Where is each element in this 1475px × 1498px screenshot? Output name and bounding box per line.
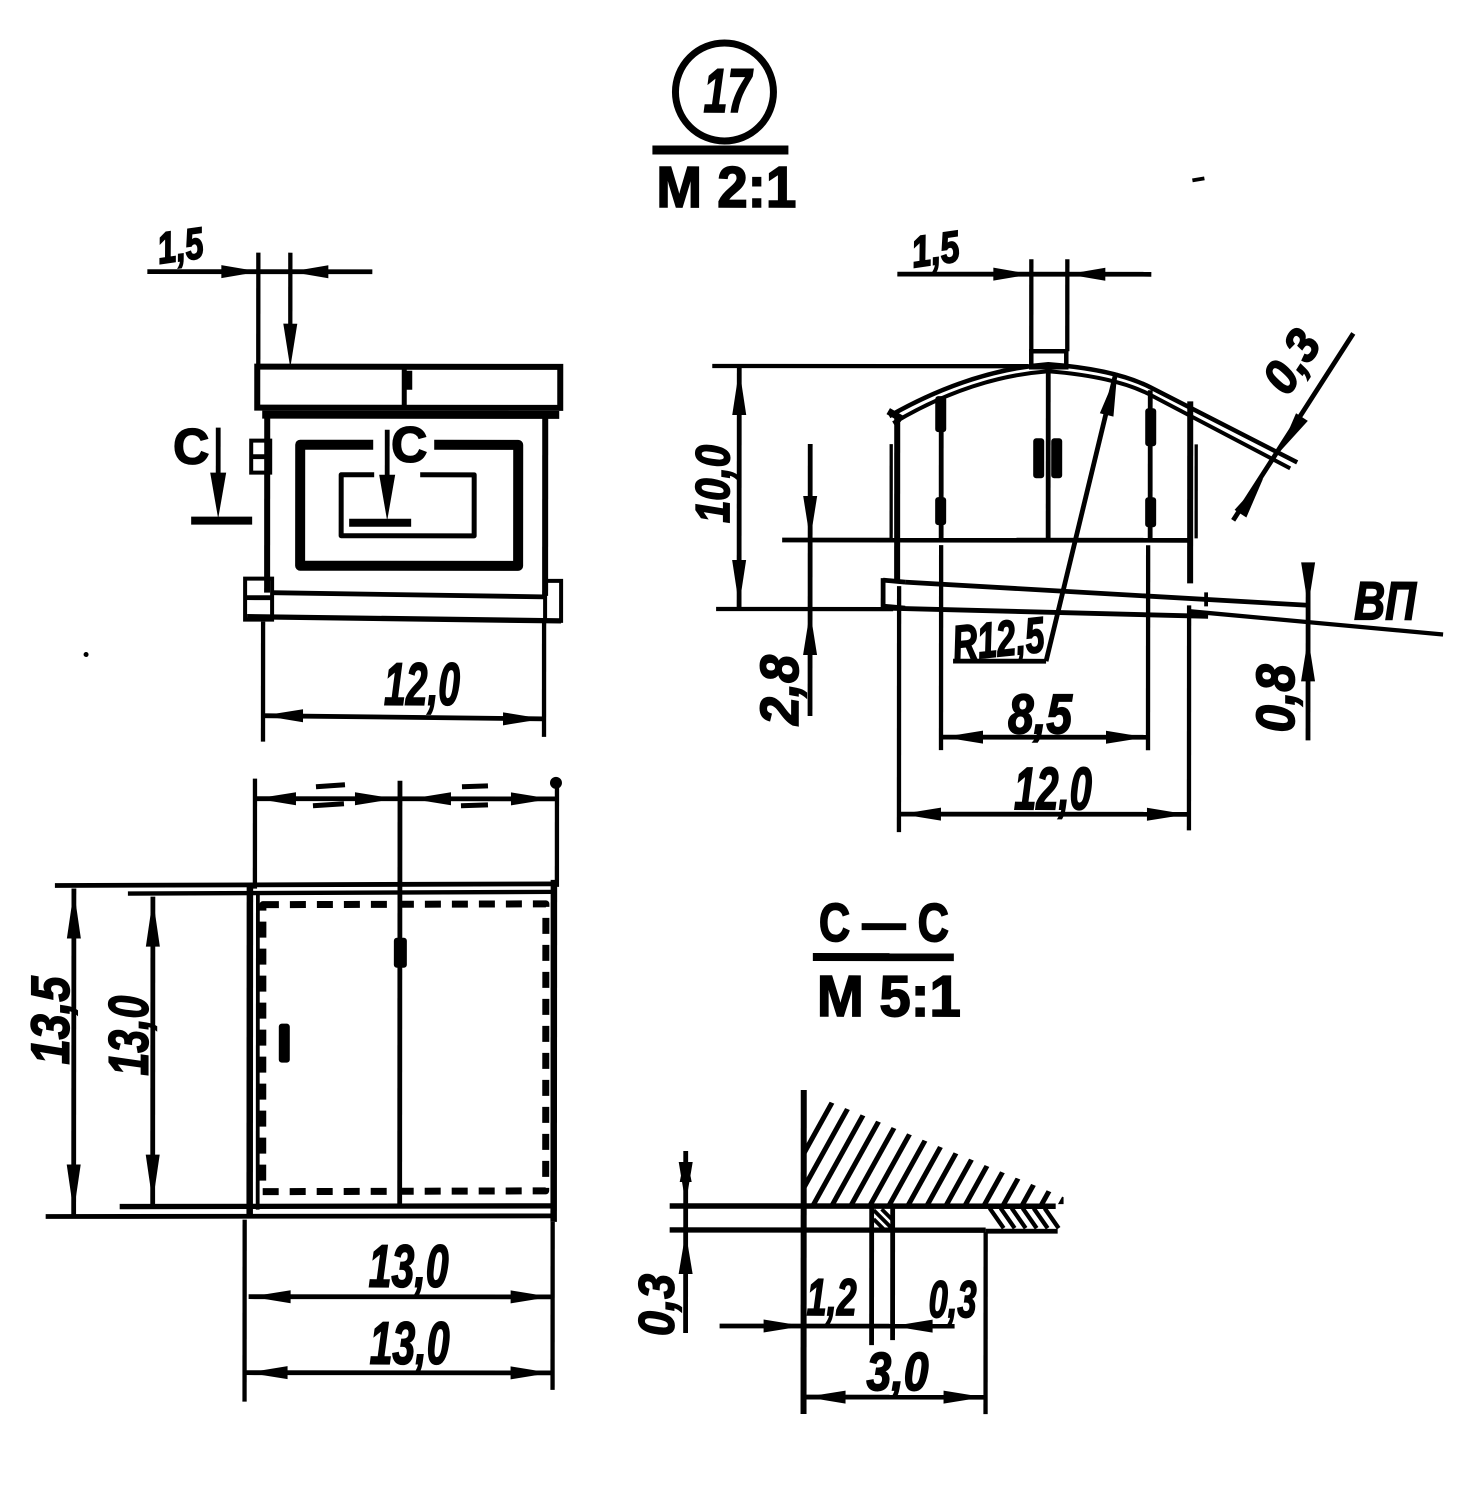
svg-text:М 2:1: М 2:1 [656,155,796,220]
svg-text:С: С [391,417,427,473]
svg-text:13,5: 13,5 [21,976,81,1065]
svg-text:3,0: 3,0 [867,1342,929,1402]
svg-text:ВП: ВП [1354,571,1417,631]
svg-text:13,0: 13,0 [369,1233,449,1300]
svg-text:1,2: 1,2 [807,1269,857,1327]
svg-text:13,0: 13,0 [97,996,160,1076]
svg-text:М 5:1: М 5:1 [817,964,961,1029]
svg-text:С — С: С — С [819,893,949,953]
svg-text:13,0: 13,0 [370,1310,450,1377]
svg-text:С: С [173,419,209,475]
svg-text:12,0: 12,0 [384,651,460,718]
svg-text:0,3: 0,3 [929,1271,977,1329]
svg-text:0,3: 0,3 [629,1274,685,1336]
svg-text:12,0: 12,0 [1014,755,1092,822]
svg-text:1,5: 1,5 [154,219,207,274]
svg-text:17: 17 [703,57,753,126]
svg-text:8,5: 8,5 [1008,682,1073,745]
svg-text:1,5: 1,5 [908,222,963,277]
svg-text:2,8: 2,8 [750,655,810,726]
svg-text:0,8: 0,8 [1246,664,1306,732]
svg-text:10,0: 10,0 [687,445,740,523]
